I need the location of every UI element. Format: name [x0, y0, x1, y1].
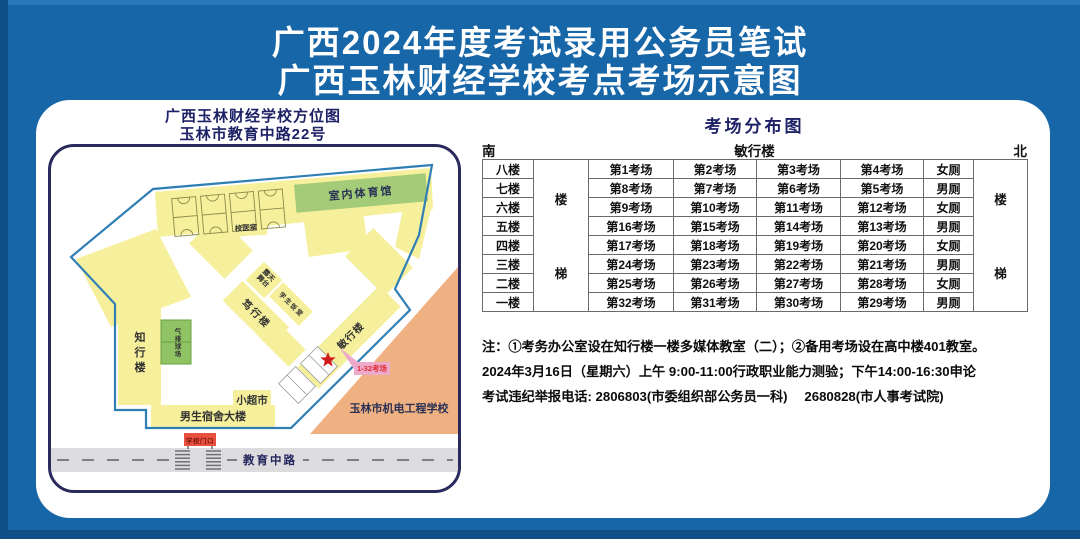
room-cell: 第12考场 — [841, 198, 924, 217]
room-cell: 第6考场 — [757, 179, 841, 198]
school-map-panel: 室内体育馆 校医室 露天舞台 学生饭堂 笃行楼 敏行楼 知行楼 气排球场 小超市… — [48, 144, 461, 493]
room-cell: 第16考场 — [589, 217, 674, 236]
room-cell: 第27考场 — [757, 274, 841, 293]
room-cell: 第28考场 — [841, 274, 924, 293]
floor-cell: 五楼 — [483, 217, 534, 236]
room-cell: 第11考场 — [757, 198, 841, 217]
room-cell: 第21考场 — [841, 255, 924, 274]
stairs-label-bottom: 梯 — [994, 263, 1007, 282]
floor-cell: 八楼 — [483, 160, 534, 179]
page-title-line2: 广西玉林财经学校考点考场示意图 — [0, 54, 1080, 102]
room-cell: 第31考场 — [674, 293, 757, 312]
note-line: 2024年3月16日（星期六）上午 9:00-11:00行政职业能力测验；下午1… — [482, 359, 1052, 384]
toilet-cell: 女厕 — [924, 236, 974, 255]
dorm-label: 男生宿舍大楼 — [180, 408, 246, 424]
floor-cell: 四楼 — [483, 236, 534, 255]
room-cell: 第14考场 — [757, 217, 841, 236]
exam-rooms-callout: 1-32考场 — [354, 362, 390, 375]
exam-room-table: 八楼 楼 梯 第1考场 第2考场 第3考场 第4考场 女厕 楼 梯 七楼 第8考… — [482, 159, 1028, 312]
floor-cell: 三楼 — [483, 255, 534, 274]
volleyball-label: 气排球场 — [171, 328, 181, 358]
room-cell: 第15考场 — [674, 217, 757, 236]
stairs-label-top: 楼 — [994, 189, 1007, 208]
room-cell: 第5考场 — [841, 179, 924, 198]
toilet-cell: 男厕 — [924, 293, 974, 312]
room-cell: 第9考场 — [589, 198, 674, 217]
room-cell: 第8考场 — [589, 179, 674, 198]
room-cell: 第32考场 — [589, 293, 674, 312]
room-cell: 第2考场 — [674, 160, 757, 179]
zhixing-building-label: 知行楼 — [131, 332, 147, 377]
room-cell: 第24考场 — [589, 255, 674, 274]
room-cell: 第25考场 — [589, 274, 674, 293]
room-cell: 第19考场 — [757, 236, 841, 255]
table-row: 八楼 楼 梯 第1考场 第2考场 第3考场 第4考场 女厕 楼 梯 — [483, 160, 1028, 179]
table-title: 考场分布图 — [482, 112, 1027, 137]
notes-block: 注：①考务办公室设在知行楼一楼多媒体教室（二）；②备用考场设在高中楼401教室。… — [482, 334, 1052, 409]
stairs-right-cell: 楼 梯 — [974, 160, 1028, 312]
room-cell: 第17考场 — [589, 236, 674, 255]
note-line: 注：①考务办公室设在知行楼一楼多媒体教室（二）；②备用考场设在高中楼401教室。 — [482, 334, 1052, 359]
exam-building-name: 敏行楼 — [734, 140, 775, 160]
floor-cell: 六楼 — [483, 198, 534, 217]
stairs-label-bottom: 梯 — [555, 263, 568, 282]
stairs-label-top: 楼 — [555, 189, 568, 208]
toilet-cell: 男厕 — [924, 217, 974, 236]
direction-north: 北 — [1014, 140, 1028, 160]
map-title-line2: 玉林市教育中路22号 — [48, 123, 458, 144]
room-cell: 第4考场 — [841, 160, 924, 179]
room-cell: 第13考场 — [841, 217, 924, 236]
room-cell: 第29考场 — [841, 293, 924, 312]
room-cell: 第22考场 — [757, 255, 841, 274]
bottom-edge-strip — [0, 530, 1080, 539]
content-card: 广西玉林财经学校方位图 玉林市教育中路22号 — [36, 100, 1050, 518]
road-label: 教育中路 — [237, 452, 303, 468]
room-cell: 第23考场 — [674, 255, 757, 274]
room-cell: 第10考场 — [674, 198, 757, 217]
toilet-cell: 男厕 — [924, 255, 974, 274]
note-line: 考试违纪举报电话: 2806803(市委组织部公务员一科) 2680828(市人… — [482, 384, 1052, 409]
floor-cell: 二楼 — [483, 274, 534, 293]
room-cell: 第30考场 — [757, 293, 841, 312]
floor-cell: 一楼 — [483, 293, 534, 312]
top-edge-strip — [8, 0, 1080, 5]
stairs-left-cell: 楼 梯 — [534, 160, 589, 312]
floor-cell: 七楼 — [483, 179, 534, 198]
toilet-cell: 女厕 — [924, 274, 974, 293]
clinic-label: 校医室 — [234, 222, 257, 235]
school-gate-label: 学校门口 — [184, 433, 216, 446]
toilet-cell: 男厕 — [924, 179, 974, 198]
room-cell: 第1考场 — [589, 160, 674, 179]
supermarket-label: 小超市 — [236, 393, 268, 408]
direction-south: 南 — [482, 140, 496, 160]
toilet-cell: 女厕 — [924, 198, 974, 217]
toilet-cell: 女厕 — [924, 160, 974, 179]
neighbor-school-label: 玉林市机电工程学校 — [350, 400, 449, 416]
room-cell: 第18考场 — [674, 236, 757, 255]
room-cell: 第26考场 — [674, 274, 757, 293]
room-cell: 第7考场 — [674, 179, 757, 198]
room-cell: 第3考场 — [757, 160, 841, 179]
room-cell: 第20考场 — [841, 236, 924, 255]
